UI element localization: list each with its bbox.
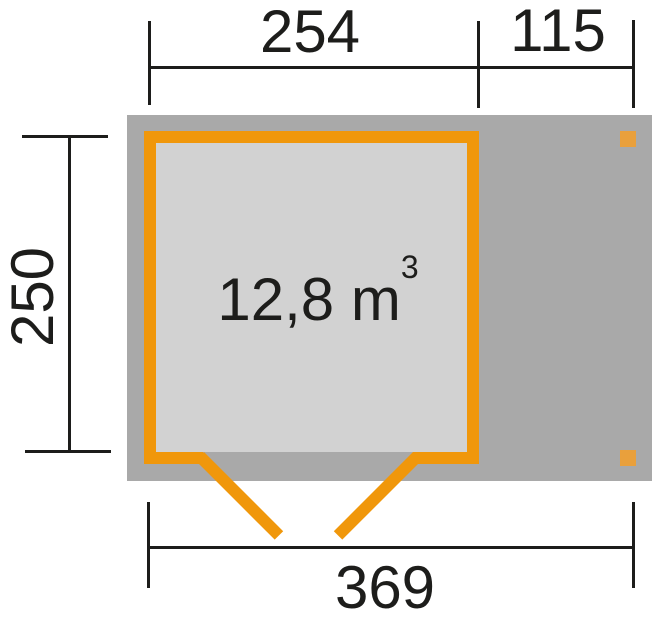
- dimension-tick-bottom-right: [632, 502, 635, 588]
- dimension-tick-left-bottom: [25, 450, 111, 453]
- volume-value: 12,8 m: [217, 266, 400, 333]
- dimension-label-extension-width: 115: [510, 1, 606, 61]
- dimension-tick-top-right: [632, 20, 635, 108]
- dimension-label-house-width: 254: [260, 2, 360, 62]
- dimension-tick-left-top: [22, 135, 108, 138]
- volume-label: 12,8 m3: [217, 270, 418, 330]
- shed-floor-plan: 12,8 m3 254 115 250 369: [0, 0, 652, 640]
- dimension-line-bottom: [147, 546, 635, 549]
- dimension-label-total-width: 369: [335, 558, 435, 618]
- dimension-label-depth: 250: [3, 247, 63, 347]
- dimension-tick-top-left: [148, 21, 151, 105]
- roof-post-bottom: [620, 450, 636, 466]
- dimension-line-left: [68, 135, 71, 453]
- dimension-line-top: [148, 66, 635, 69]
- door-opening: [203, 452, 413, 464]
- dimension-tick-bottom-left: [147, 502, 150, 588]
- volume-superscript: 3: [401, 249, 419, 285]
- dimension-tick-top-middle: [477, 21, 480, 108]
- roof-post-top: [620, 131, 636, 147]
